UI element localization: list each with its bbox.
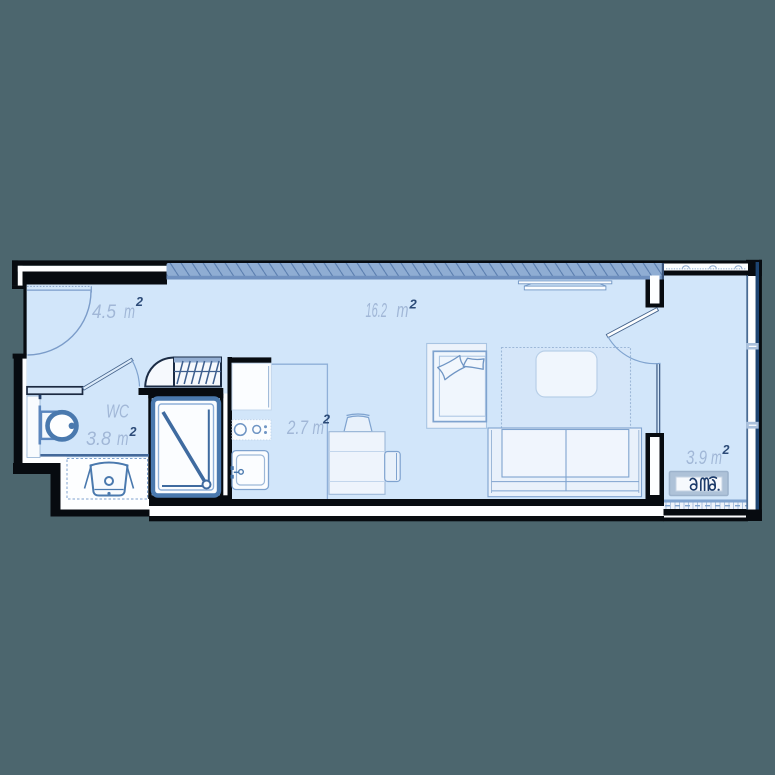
svg-text:m: m — [124, 302, 135, 323]
svg-text:2: 2 — [722, 443, 730, 457]
svg-text:2: 2 — [129, 425, 137, 439]
svg-text:3.9: 3.9 — [686, 448, 707, 469]
svg-text:2.7: 2.7 — [286, 418, 309, 439]
svg-text:m: m — [711, 448, 722, 469]
svg-text:m: m — [117, 428, 129, 450]
svg-text:2: 2 — [135, 295, 143, 309]
svg-text:2: 2 — [322, 413, 330, 427]
svg-text:m: m — [397, 300, 409, 322]
svg-text:2: 2 — [409, 297, 418, 312]
svg-text:4.5: 4.5 — [92, 302, 116, 323]
svg-text:WC: WC — [106, 402, 130, 422]
svg-text:3.8: 3.8 — [86, 428, 111, 450]
svg-text:16.2: 16.2 — [366, 300, 388, 322]
